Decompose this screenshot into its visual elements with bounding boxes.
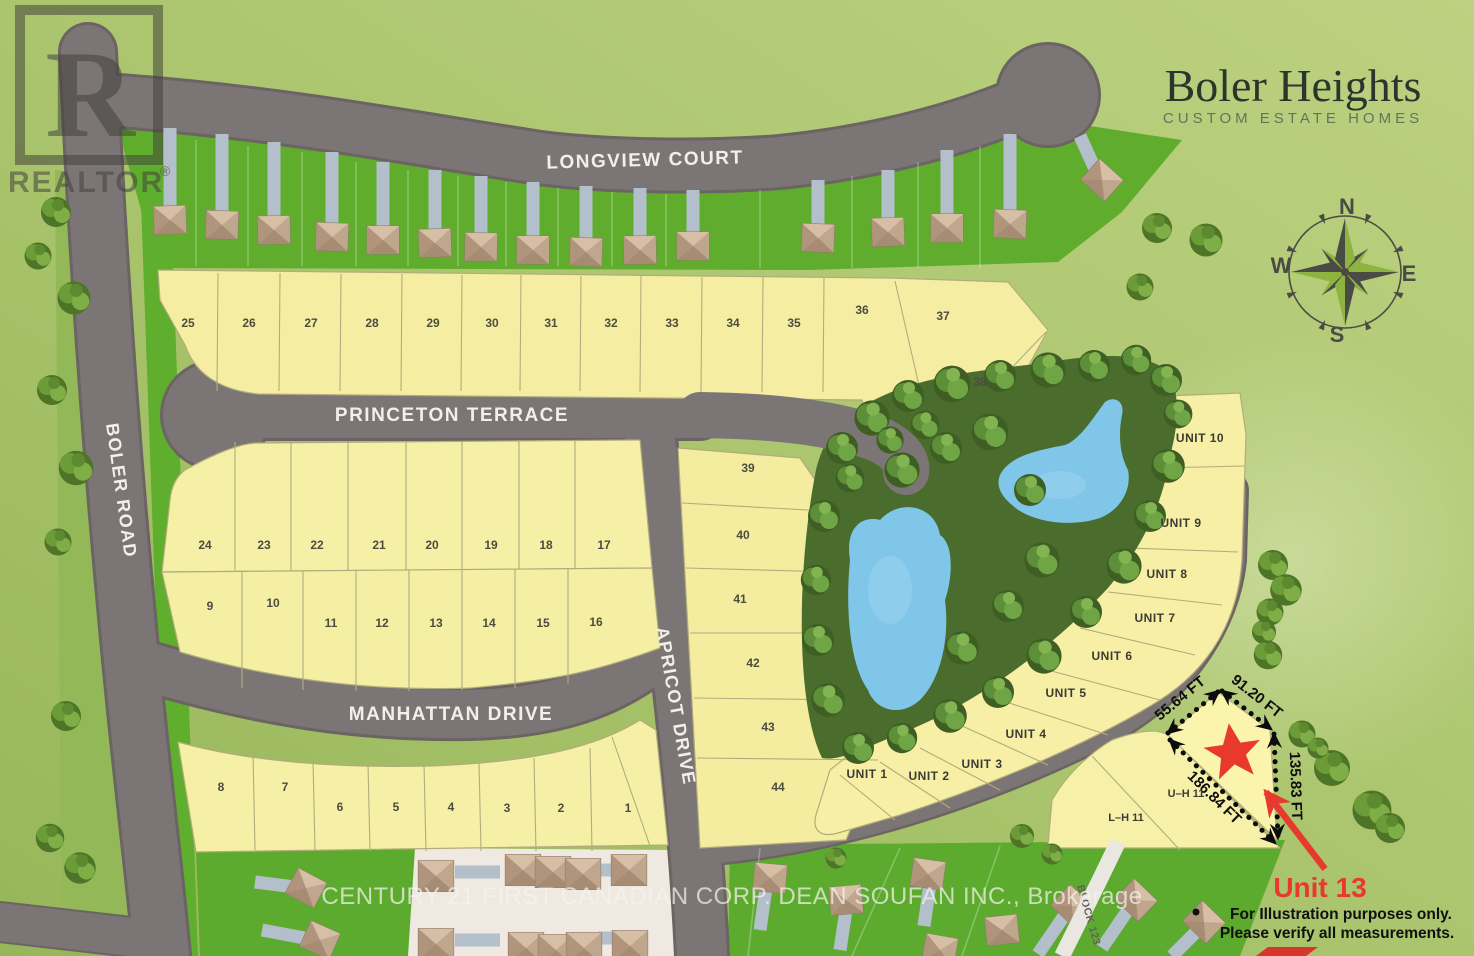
lot-30: 30 [485, 316, 499, 330]
unit-7-label: UNIT 7 [1134, 611, 1175, 625]
lot-3: 3 [504, 801, 511, 815]
disclaimer-line-2: Please verify all measurements. [1220, 925, 1454, 942]
site-plan-canvas: BLOCK 123 55.64 FT 91.20 FT 135.83 FT 18… [0, 0, 1474, 956]
lot-15: 15 [536, 616, 550, 630]
compass-north-label: N [1339, 194, 1355, 219]
page-subtitle: CUSTOM ESTATE HOMES [1163, 110, 1423, 127]
unit-uh11-label: U–H 11 [1168, 788, 1205, 800]
lot-24: 24 [198, 538, 212, 552]
lot-29: 29 [426, 316, 440, 330]
lot-18: 18 [539, 538, 553, 552]
lot-43: 43 [761, 720, 775, 734]
header: Boler Heights CUSTOM ESTATE HOMES [1163, 60, 1423, 127]
lot-22: 22 [310, 538, 324, 552]
lot-25: 25 [181, 316, 195, 330]
lot-23: 23 [257, 538, 271, 552]
unit-1-label: UNIT 1 [846, 767, 887, 781]
lot-31: 31 [544, 316, 558, 330]
lot-38: 38 [973, 375, 987, 389]
lot-35: 35 [787, 316, 801, 330]
note-bullet-icon [1193, 909, 1200, 916]
lot-7: 7 [282, 780, 289, 794]
compass-south-label: S [1330, 322, 1345, 347]
street-label-manhattan: MANHATTAN DRIVE [349, 704, 553, 725]
brokerage-watermark: CENTURY 21 FIRST CANADIAN CORP. DEAN SOU… [321, 883, 1142, 910]
unit-lh11-label: L–H 11 [1108, 812, 1143, 824]
unit-13-label: Unit 13 [1273, 872, 1366, 903]
lot-5: 5 [393, 800, 400, 814]
disclaimer-line-1: For Illustration purposes only. [1230, 906, 1452, 923]
lot-11: 11 [325, 616, 338, 630]
unit-2-label: UNIT 2 [908, 769, 949, 783]
lot-36: 36 [855, 303, 869, 317]
lot-27: 27 [304, 316, 318, 330]
page-title: Boler Heights [1165, 60, 1422, 111]
lot-10: 10 [266, 596, 280, 610]
lot-4: 4 [448, 800, 455, 814]
unit-8-label: UNIT 8 [1146, 567, 1187, 581]
lot-16: 16 [589, 615, 603, 629]
compass-east-label: E [1402, 261, 1417, 286]
unit-10-label: UNIT 10 [1176, 431, 1224, 445]
lot-12: 12 [375, 616, 389, 630]
lot-9: 9 [207, 599, 214, 613]
compass-west-label: W [1271, 253, 1292, 278]
lot-34: 34 [726, 316, 740, 330]
realtor-logo-letter: R [45, 26, 136, 163]
lot-44: 44 [771, 780, 785, 794]
lot-19: 19 [484, 538, 498, 552]
lot-17: 17 [597, 538, 611, 552]
lot-37: 37 [936, 309, 950, 323]
lot-20: 20 [425, 538, 439, 552]
lot-28: 28 [365, 316, 379, 330]
lot-14: 14 [482, 616, 496, 630]
lot-1: 1 [625, 801, 632, 815]
lot-13: 13 [429, 616, 443, 630]
measurement-right: 135.83 FT [1286, 751, 1305, 820]
unit-9-label: UNIT 9 [1160, 516, 1201, 530]
realtor-registered-mark: ® [160, 163, 171, 179]
lot-8: 8 [218, 780, 225, 794]
lot-32: 32 [604, 316, 618, 330]
unit-4-label: UNIT 4 [1005, 727, 1046, 741]
unit-6-label: UNIT 6 [1091, 649, 1132, 663]
lot-33: 33 [665, 316, 679, 330]
realtor-logo-text: REALTOR [8, 166, 164, 199]
lot-39: 39 [741, 461, 755, 475]
street-label-princeton: PRINCETON TERRACE [335, 405, 569, 426]
lot-26: 26 [242, 316, 256, 330]
unit-3-label: UNIT 3 [961, 757, 1002, 771]
lot-6: 6 [337, 800, 344, 814]
unit-5-label: UNIT 5 [1045, 686, 1086, 700]
lot-42: 42 [746, 656, 760, 670]
lot-41: 41 [733, 592, 747, 606]
site-plan-map: BLOCK 123 55.64 FT 91.20 FT 135.83 FT 18… [0, 0, 1474, 956]
lot-21: 21 [372, 538, 386, 552]
lot-2: 2 [558, 801, 565, 815]
lot-40: 40 [736, 528, 750, 542]
